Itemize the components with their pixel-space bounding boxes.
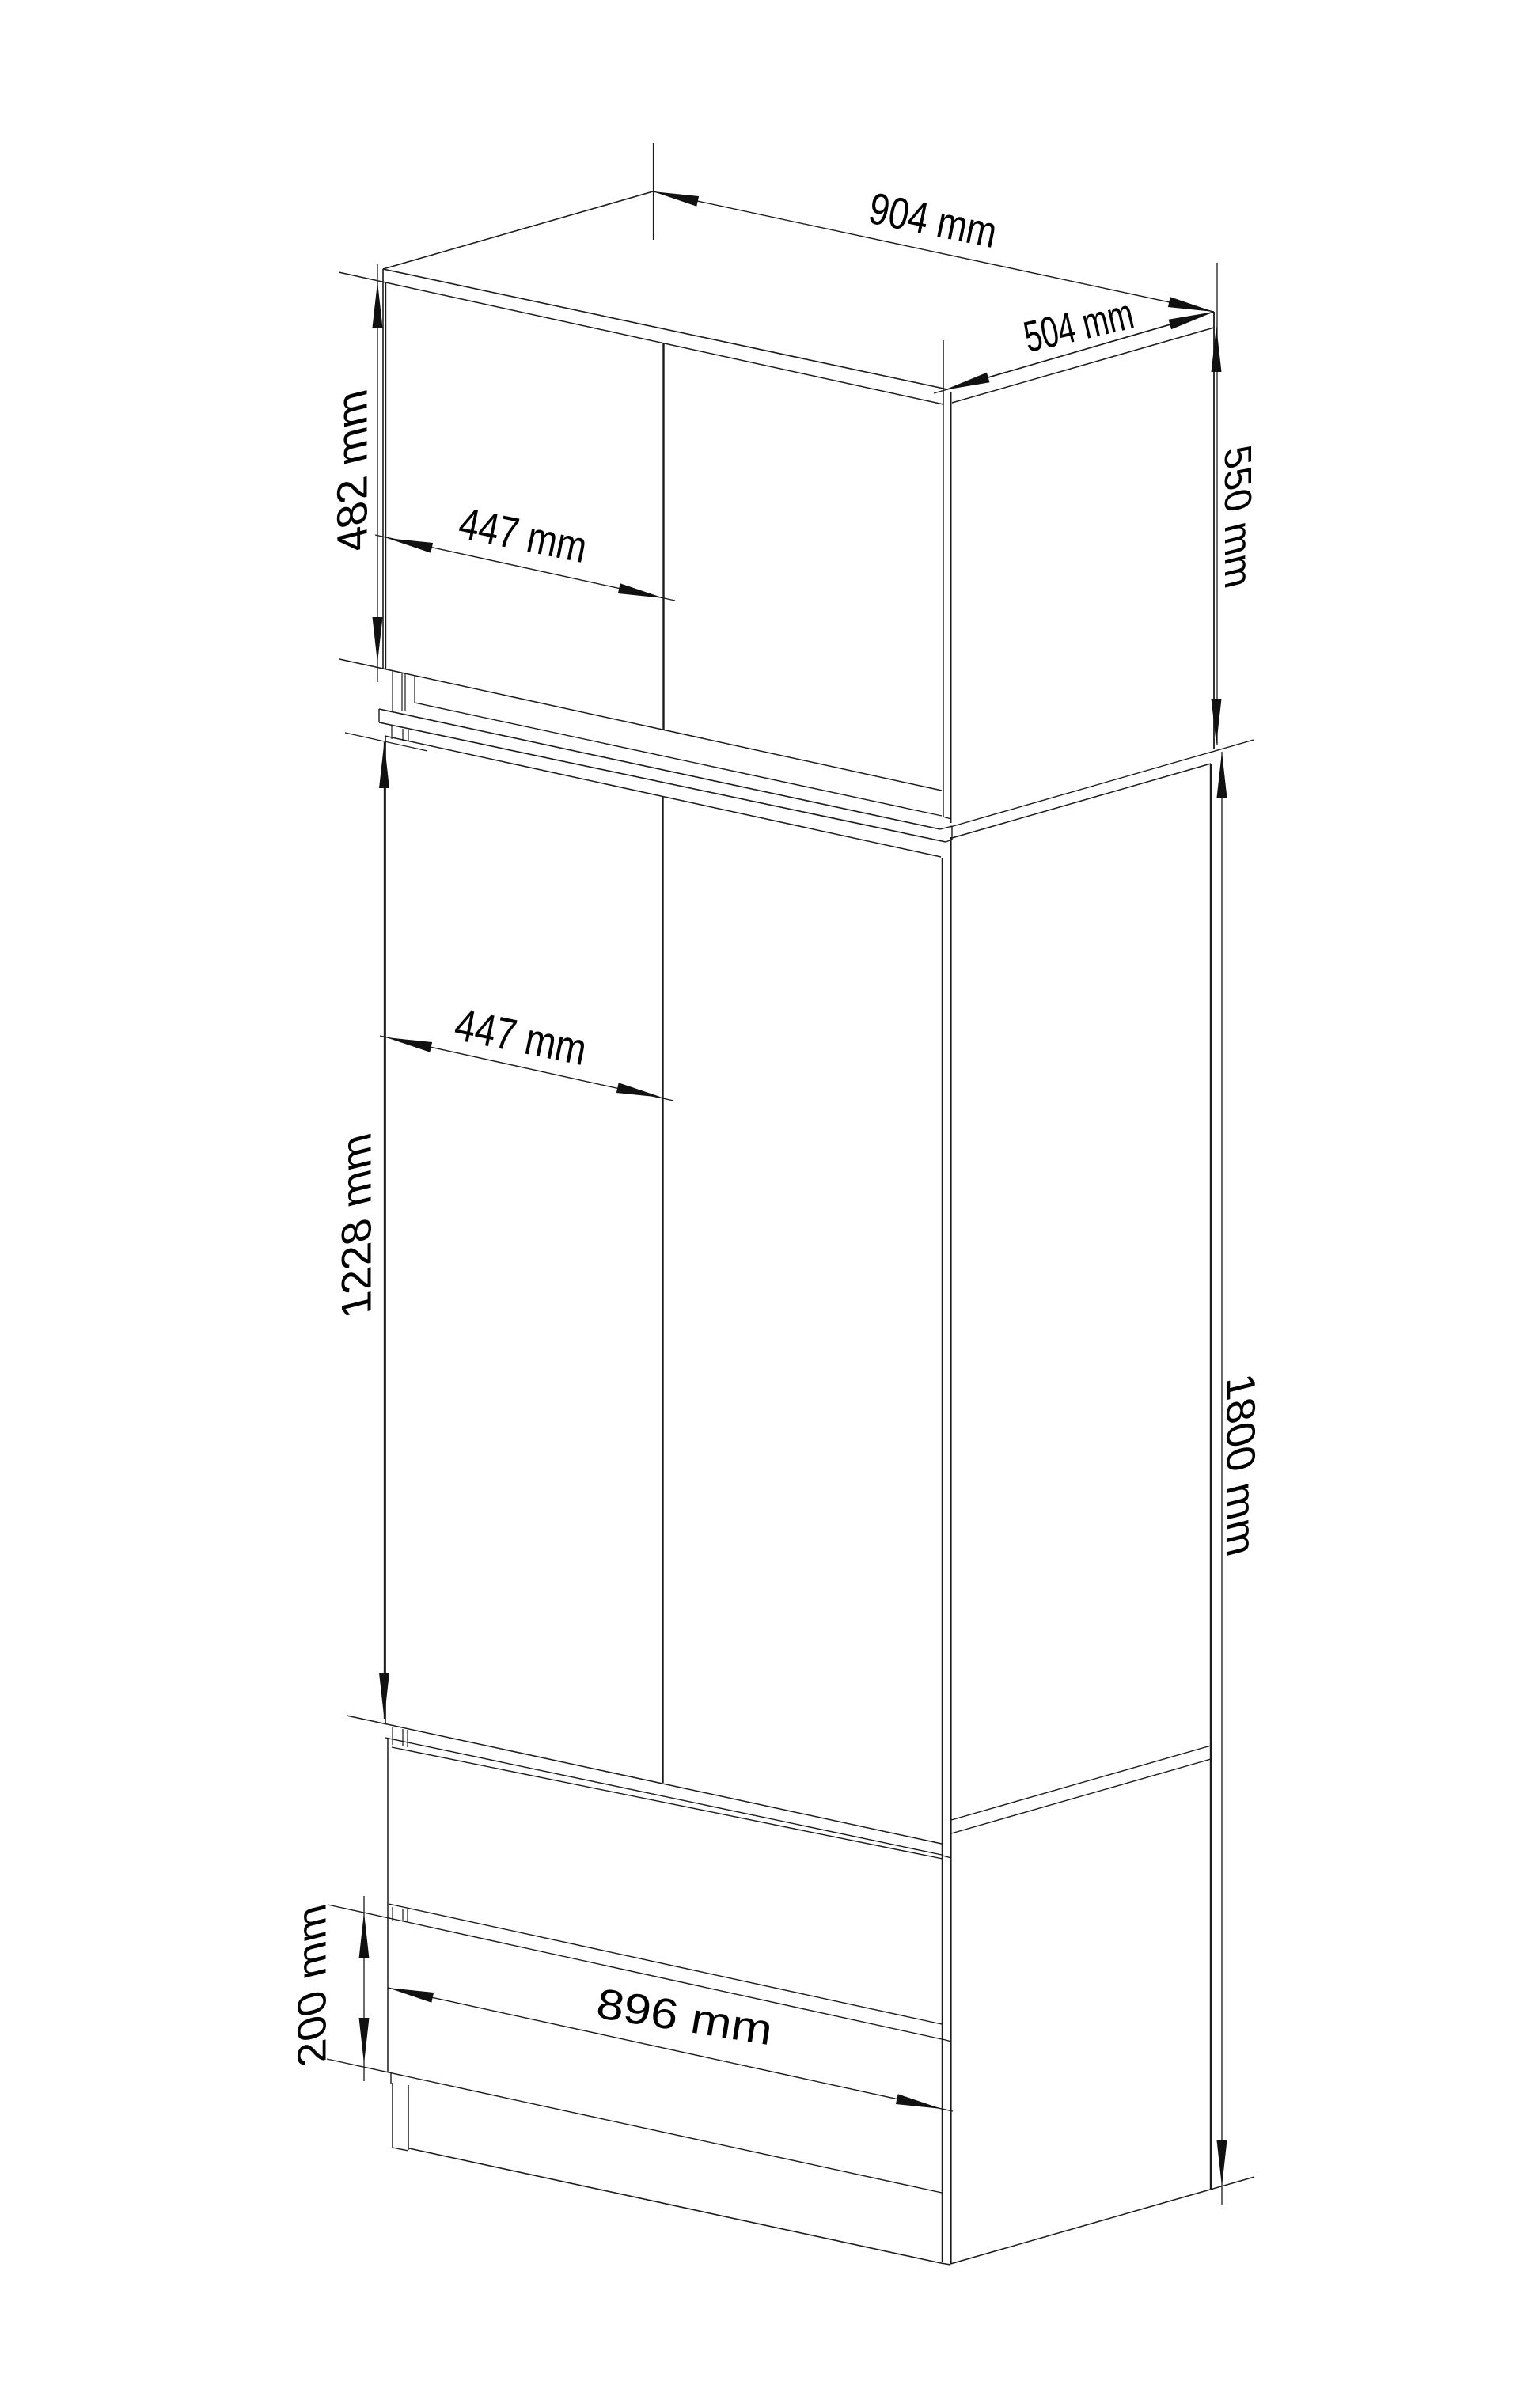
svg-text:200 mm: 200 mm [289, 1900, 334, 2071]
svg-text:1800 mm: 1800 mm [1218, 1369, 1263, 1560]
svg-text:550 mm: 550 mm [1216, 441, 1258, 592]
svg-text:1228 mm: 1228 mm [333, 1128, 380, 1323]
svg-text:482 mm: 482 mm [328, 385, 376, 558]
